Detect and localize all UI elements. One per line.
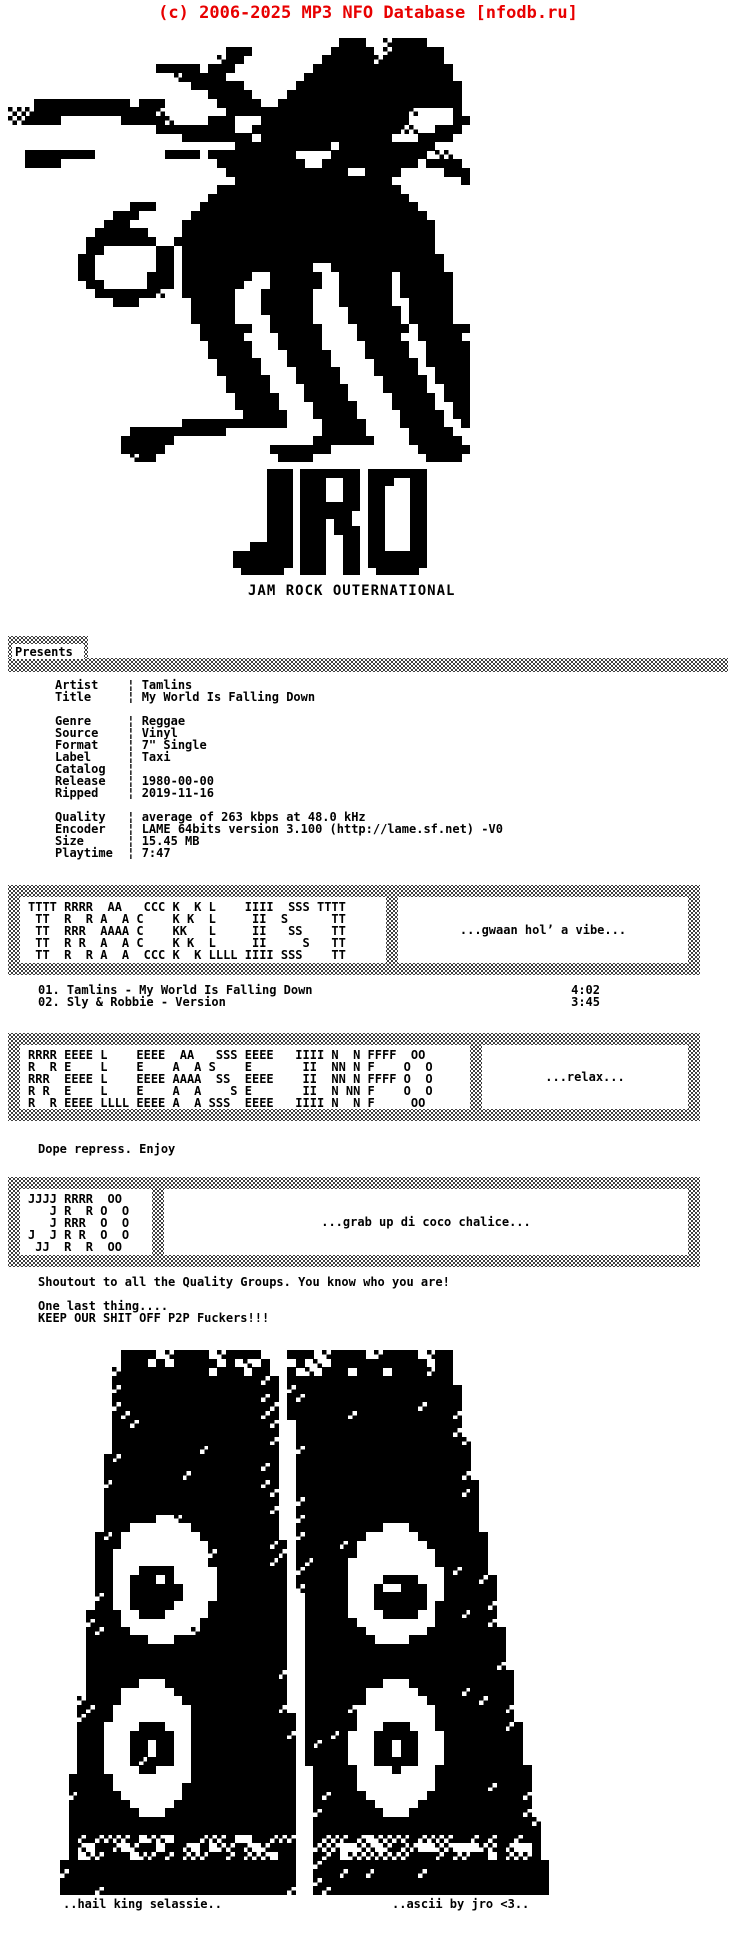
track-row: 02. Sly & Robbie - Version3:45 <box>38 996 600 1008</box>
jro-art-cell: JJJJ RRRR OO J R R O O J RRR O O J J R R… <box>20 1189 152 1255</box>
footer-right-caption: ..ascii by jro <3.. <box>392 1898 529 1910</box>
track-title: 02. Sly & Robbie - Version <box>38 996 226 1008</box>
group-tagline: JAM ROCK OUTERNATIONAL <box>248 584 455 598</box>
release-art-box: RRRR EEEE L EEEE AA SSS EEEE IIII N N FF… <box>8 1033 700 1121</box>
release-slogan-cell: ...relax... <box>482 1045 688 1109</box>
tracklist: 01. Tamlins - My World Is Falling Down4:… <box>38 984 600 1008</box>
rasta-lion-ascii-art <box>8 38 470 462</box>
jro-slogan: ...grab up di coco chalice... <box>164 1189 688 1255</box>
track-time: 3:45 <box>571 996 600 1008</box>
jro-art-box: JJJJ RRRR OO J R R O O J RRR O O J J R R… <box>8 1177 700 1267</box>
tracklist-art-box: TTTT RRRR AA CCC K K L IIII SSS TTTT TT … <box>8 885 700 975</box>
presents-label: Presents <box>15 646 73 658</box>
release-info-block: Artist ¦ Tamlins Title ¦ My World Is Fal… <box>55 679 503 859</box>
release-slogan: ...relax... <box>482 1045 688 1109</box>
shoutout-note: Shoutout to all the Quality Groups. You … <box>38 1276 450 1288</box>
jro-logo-art <box>233 469 427 575</box>
release-ascii-word: RRRR EEEE L EEEE AA SSS EEEE IIII N N FF… <box>20 1045 470 1109</box>
presents-tab: Presents <box>12 644 84 659</box>
presents-divider-band <box>8 658 728 672</box>
jro-ascii-word: JJJJ RRRR OO J R R O O J RRR O O J J R R… <box>20 1189 152 1253</box>
nfodb-copyright-banner: (c) 2006-2025 MP3 NFO Database [nfodb.ru… <box>0 3 736 23</box>
speakers-ascii-art <box>60 1350 680 1895</box>
tracklist-art-cell: TTTT RRRR AA CCC K K L IIII SSS TTTT TT … <box>20 897 386 963</box>
footer-left-caption: ..hail king selassie.. <box>63 1898 222 1910</box>
release-art-cell: RRRR EEEE L EEEE AA SSS EEEE IIII N N FF… <box>20 1045 470 1109</box>
tracklist-ascii-word: TTTT RRRR AA CCC K K L IIII SSS TTTT TT … <box>20 897 386 961</box>
nfo-page: (c) 2006-2025 MP3 NFO Database [nfodb.ru… <box>0 0 736 1944</box>
tracklist-slogan-cell: ...gwaan hol’ a vibe... <box>398 897 688 963</box>
jro-slogan-cell: ...grab up di coco chalice... <box>164 1189 688 1255</box>
tracklist-slogan: ...gwaan hol’ a vibe... <box>398 897 688 963</box>
repress-note: Dope repress. Enjoy <box>38 1143 175 1155</box>
keep-off-p2p-note: KEEP OUR SHIT OFF P2P Fuckers!!! <box>38 1312 269 1324</box>
